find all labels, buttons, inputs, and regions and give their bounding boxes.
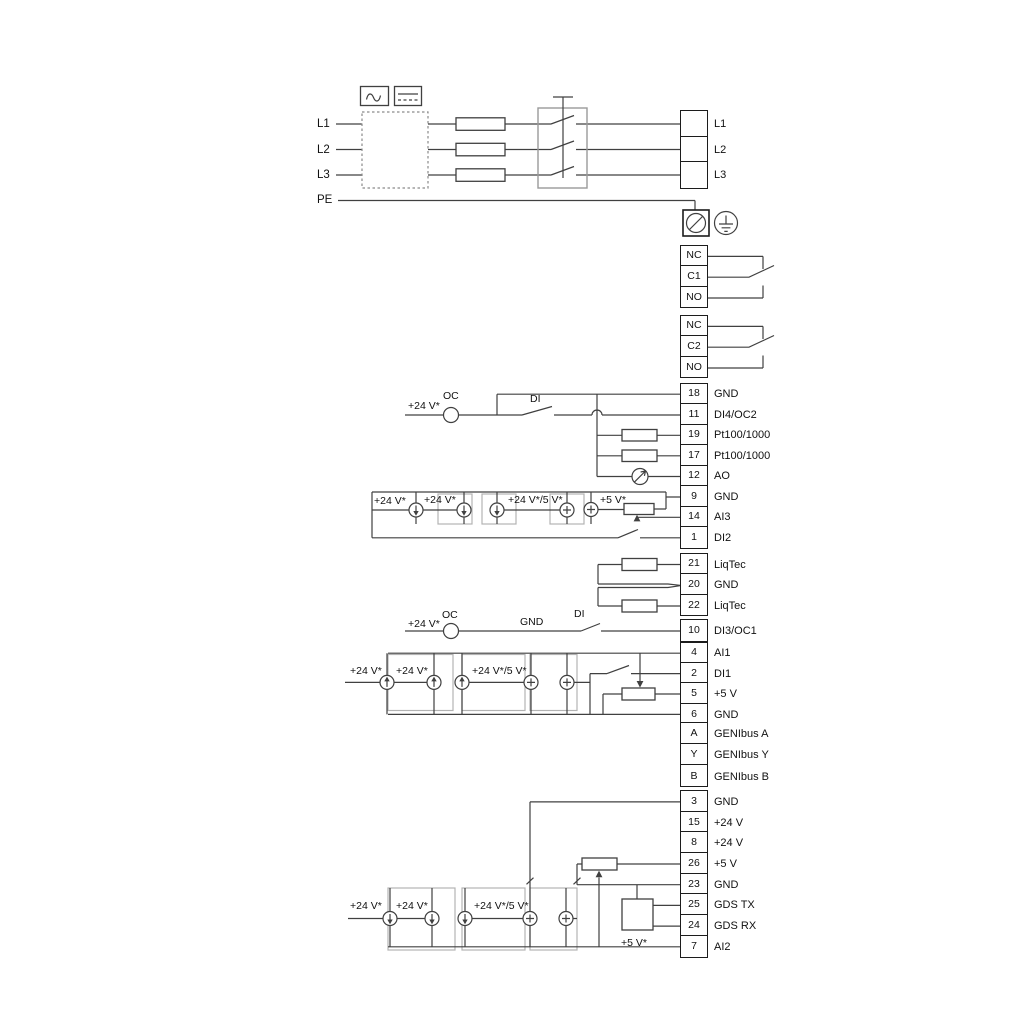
supply-label: +24 V*	[374, 495, 406, 507]
sensor-resistor-icon	[622, 559, 657, 571]
terminal-label: GND	[714, 491, 738, 503]
open-collector-icon	[444, 624, 459, 639]
terminal-cell: 8	[681, 832, 707, 853]
schematic-wires	[0, 0, 1024, 1024]
terminal-block-liqtec: 21 20 22	[680, 553, 708, 617]
terminal-label: Pt100/1000	[714, 429, 770, 441]
terminal-cell: 25	[681, 894, 707, 915]
current-source-icon	[490, 503, 504, 517]
sensor-resistor-icon	[622, 600, 657, 612]
voltage-source-icon	[523, 912, 537, 926]
gnd-label: GND	[520, 616, 543, 628]
terminal-label: L1	[714, 118, 726, 130]
terminal-cell	[681, 137, 707, 163]
current-source-icon	[457, 503, 471, 517]
terminal-cell: 14	[681, 507, 707, 528]
terminal-label: LiqTec	[714, 600, 746, 612]
mains-power-wiring	[336, 87, 738, 237]
fuse-icon	[456, 118, 505, 131]
terminal-cell: 21	[681, 554, 707, 575]
terminal-cell: C2	[681, 336, 707, 357]
voltage-source-icon	[559, 912, 573, 926]
potentiometer-icon	[624, 504, 654, 515]
ai1-wiring	[345, 653, 680, 714]
terminal-label: AI1	[714, 647, 731, 659]
terminal-cell: 12	[681, 466, 707, 487]
supply-label: +24 V*	[396, 665, 428, 677]
di-label: DI	[574, 608, 585, 620]
terminal-label: GND	[714, 388, 738, 400]
terminal-label: DI2	[714, 532, 731, 544]
current-source-icon	[383, 912, 397, 926]
terminal-cell: 1	[681, 527, 707, 548]
terminal-cell: 9	[681, 486, 707, 507]
terminal-cell: B	[681, 765, 707, 786]
supply-label: +24 V*	[350, 665, 382, 677]
terminal-block-relay1: NC C1 NO	[680, 245, 708, 309]
terminal-label: AI3	[714, 511, 731, 523]
current-source-icon	[380, 675, 394, 689]
voltage-source-icon	[560, 675, 574, 689]
terminal-block-relay2: NC C2 NO	[680, 315, 708, 379]
fuse-icon	[456, 169, 505, 182]
ai2-gds-wiring	[348, 802, 680, 950]
supply-label: +5 V*	[621, 937, 647, 949]
current-source-icon	[425, 912, 439, 926]
terminal-block-mains	[680, 110, 708, 189]
terminal-cell: 15	[681, 812, 707, 833]
current-source-icon	[409, 503, 423, 517]
terminal-cell: 22	[681, 595, 707, 616]
terminal-block-di3: 10	[680, 619, 708, 642]
voltage-source-icon	[524, 675, 538, 689]
mains-in-label-pe: PE	[317, 194, 332, 206]
terminal-label: +24 V	[714, 817, 743, 829]
terminal-block-io2: 4 2 5 6	[680, 642, 708, 726]
pt100-resistor-icon	[622, 450, 657, 462]
oc-label: OC	[443, 390, 459, 402]
terminal-label: GENIbus Y	[714, 749, 769, 761]
terminal-block-genibus: A Y B	[680, 722, 708, 787]
terminal-label: DI4/OC2	[714, 409, 757, 421]
terminal-label: GENIbus A	[714, 728, 768, 740]
terminal-label: L2	[714, 144, 726, 156]
supply-label: +24 V*/5 V*	[474, 900, 529, 912]
terminal-label: GND	[714, 579, 738, 591]
terminal-cell: 18	[681, 384, 707, 405]
terminal-cell	[681, 111, 707, 137]
gds-sensor-box	[622, 899, 653, 930]
relay-contact-icon	[708, 256, 774, 368]
supply-label: +24 V*	[408, 400, 440, 412]
terminal-label: +24 V	[714, 837, 743, 849]
terminal-cell: 6	[681, 704, 707, 724]
terminal-cell: 23	[681, 874, 707, 895]
supply-label: +24 V*/5 V*	[508, 494, 563, 506]
io1-wiring	[405, 394, 680, 484]
filter-box	[362, 112, 428, 188]
current-source-icon	[427, 675, 441, 689]
terminal-cell: 4	[681, 643, 707, 663]
mains-in-label-l2: L2	[317, 144, 330, 156]
terminal-cell: 3	[681, 791, 707, 812]
supply-label: +24 V*	[424, 494, 456, 506]
terminal-cell: 7	[681, 936, 707, 957]
terminal-label: AO	[714, 470, 730, 482]
mains-in-label-l3: L3	[317, 169, 330, 181]
terminal-block-io3: 3 15 8 26 23 25 24 7	[680, 790, 708, 958]
terminal-cell	[681, 162, 707, 188]
terminal-cell: C1	[681, 266, 707, 287]
ao-meter-icon	[632, 469, 648, 485]
dc-icon	[395, 87, 422, 106]
terminal-label: L3	[714, 169, 726, 181]
di-label: DI	[530, 393, 541, 405]
terminal-cell: 11	[681, 404, 707, 425]
pt100-resistor-icon	[622, 430, 657, 442]
supply-label: +24 V*/5 V*	[472, 665, 527, 677]
terminal-label: GND	[714, 796, 738, 808]
terminal-label: GDS TX	[714, 899, 755, 911]
liqtec-wiring	[598, 559, 680, 613]
terminal-label: DI1	[714, 668, 731, 680]
ac-icon	[361, 87, 389, 106]
terminal-cell: 20	[681, 574, 707, 595]
supply-label: +24 V*	[396, 900, 428, 912]
terminal-cell: Y	[681, 744, 707, 765]
supply-label: +5 V*	[600, 494, 626, 506]
terminal-cell: 17	[681, 445, 707, 466]
potentiometer-icon	[622, 688, 655, 700]
potentiometer-icon	[582, 858, 617, 870]
supply-label: +24 V*	[350, 900, 382, 912]
terminal-cell: NO	[681, 357, 707, 378]
terminal-label: GND	[714, 709, 738, 721]
voltage-source-icon	[584, 503, 598, 517]
terminal-cell: 24	[681, 915, 707, 936]
terminal-label: GENIbus B	[714, 771, 769, 783]
terminal-label: AI2	[714, 941, 731, 953]
terminal-cell: 2	[681, 663, 707, 683]
terminal-label: Pt100/1000	[714, 450, 770, 462]
terminal-cell: 19	[681, 425, 707, 446]
terminal-block-io1: 18 11 19 17 12 9 14 1	[680, 383, 708, 549]
mains-in-label-l1: L1	[317, 118, 330, 130]
earth-icon	[715, 212, 738, 235]
terminal-label: LiqTec	[714, 559, 746, 571]
terminal-cell: A	[681, 723, 707, 744]
current-source-icon	[455, 675, 469, 689]
current-source-icon	[458, 912, 472, 926]
terminal-cell: NC	[681, 246, 707, 267]
terminal-label: DI3/OC1	[714, 625, 757, 637]
wiring-diagram: L1 L2 L3 PE L1 L2 L3 NC C1 NO NC C2 NO 1…	[0, 0, 1024, 1024]
terminal-label: +5 V	[714, 688, 737, 700]
terminal-cell: 26	[681, 853, 707, 874]
terminal-label: GDS RX	[714, 920, 756, 932]
open-collector-icon	[444, 408, 459, 423]
terminal-label: GND	[714, 879, 738, 891]
terminal-cell: NC	[681, 316, 707, 337]
terminal-cell: 10	[681, 620, 707, 641]
oc-label: OC	[442, 609, 458, 621]
supply-label: +24 V*	[408, 618, 440, 630]
fuse-icon	[456, 143, 505, 156]
terminal-cell: NO	[681, 287, 707, 308]
terminal-label: +5 V	[714, 858, 737, 870]
terminal-cell: 5	[681, 683, 707, 703]
